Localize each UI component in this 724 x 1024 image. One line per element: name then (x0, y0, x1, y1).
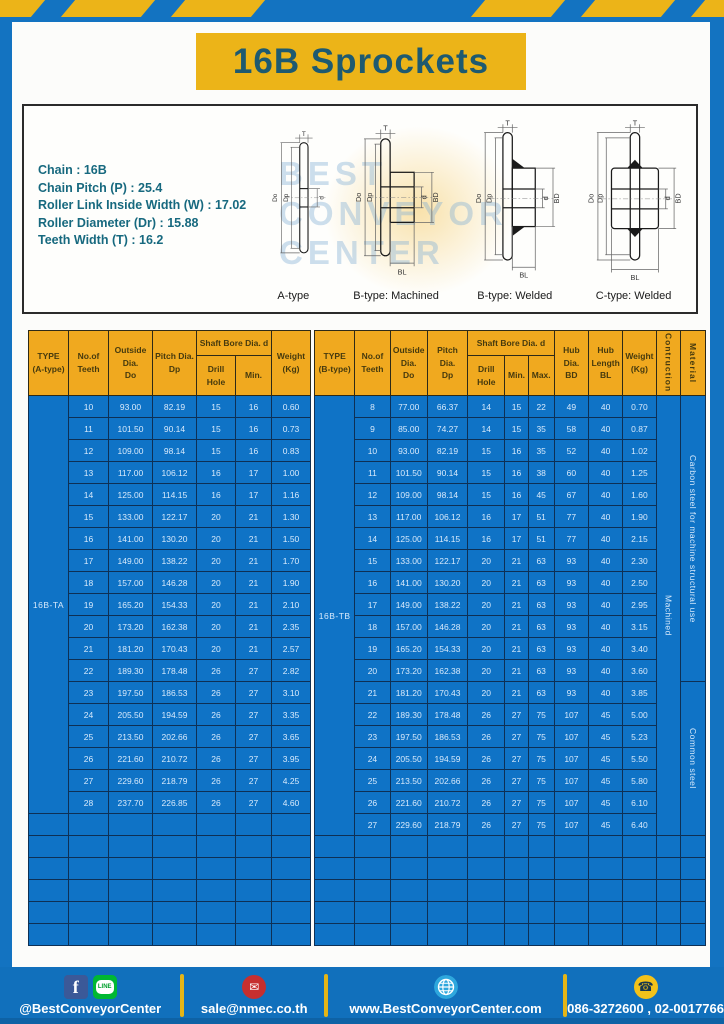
table-cell: 16 (468, 506, 505, 528)
empty-cell (680, 858, 705, 880)
table-cell: 15 (468, 484, 505, 506)
table-cell: 1.50 (272, 528, 311, 550)
empty-cell (153, 924, 197, 946)
table-cell: 82.19 (153, 396, 197, 418)
svg-text:Dp: Dp (596, 194, 605, 203)
table-cell: 1.16 (272, 484, 311, 506)
table-cell: 154.33 (427, 638, 467, 660)
table-cell: 210.72 (427, 792, 467, 814)
table-row (29, 858, 311, 880)
table-cell: 40 (589, 396, 623, 418)
table-cell: 90.14 (427, 462, 467, 484)
empty-cell (315, 858, 355, 880)
empty-cell (197, 836, 236, 858)
table-cell: 40 (589, 682, 623, 704)
table-cell: 74.27 (427, 418, 467, 440)
hazard-stripe (471, 0, 565, 17)
table-cell: 20 (197, 528, 236, 550)
table-cell: 15 (69, 506, 109, 528)
column-header-weight: Weight (Kg) (623, 331, 656, 396)
table-cell: 15 (505, 418, 528, 440)
table-cell: 14 (468, 418, 505, 440)
email-icon: ✉ (242, 975, 266, 999)
empty-cell (554, 858, 588, 880)
empty-cell (29, 924, 69, 946)
table-cell: 75 (528, 792, 554, 814)
table-cell: 27 (236, 748, 272, 770)
empty-cell (197, 814, 236, 836)
table-cell: 16 (355, 572, 390, 594)
empty-cell (623, 858, 656, 880)
empty-cell (468, 902, 505, 924)
table-row: 16B-TB877.0066.3714152249400.70MachinedC… (315, 396, 706, 418)
table-cell: 82.19 (427, 440, 467, 462)
table-cell: 15 (468, 462, 505, 484)
svg-text:BD: BD (674, 193, 683, 203)
table-cell: 20 (355, 660, 390, 682)
empty-cell (528, 880, 554, 902)
table-cell: 20 (468, 682, 505, 704)
table-cell: 141.00 (390, 572, 427, 594)
table-cell: 21 (505, 594, 528, 616)
table-cell: 18 (355, 616, 390, 638)
table-cell: 26 (355, 792, 390, 814)
table-cell: 85.00 (390, 418, 427, 440)
globe-icon (434, 975, 458, 999)
footer-email-section: ✉ sale@nmec.co.th (184, 967, 323, 1024)
empty-cell (153, 836, 197, 858)
table-cell: 16 (505, 440, 528, 462)
table-cell: 35 (528, 418, 554, 440)
table-cell: 1.90 (623, 506, 656, 528)
table-cell: 3.60 (623, 660, 656, 682)
empty-cell (528, 836, 554, 858)
table-cell: 1.90 (272, 572, 311, 594)
table-cell: 5.00 (623, 704, 656, 726)
table-row (29, 924, 311, 946)
table-cell: 93 (554, 572, 588, 594)
table-cell: 28 (69, 792, 109, 814)
table-cell: 40 (589, 594, 623, 616)
table-cell: 181.20 (109, 638, 153, 660)
table-cell: 21 (236, 594, 272, 616)
empty-cell (589, 902, 623, 924)
table-row: 11101.5090.1415160.73 (29, 418, 311, 440)
svg-text:Dp: Dp (365, 193, 374, 202)
table-cell: 20 (468, 550, 505, 572)
empty-cell (109, 836, 153, 858)
table-row: 27229.60218.79262775107456.40 (315, 814, 706, 836)
facebook-icon: f (64, 975, 88, 999)
column-header-construction: Contruction (656, 331, 680, 396)
table-cell: 9 (355, 418, 390, 440)
table-cell: 16 (505, 462, 528, 484)
empty-cell (680, 902, 705, 924)
table-cell: 194.59 (427, 748, 467, 770)
line-label: LINE (96, 980, 114, 994)
table-cell: 130.20 (427, 572, 467, 594)
column-header-teeth: No.of Teeth (69, 331, 109, 396)
svg-text:Do: Do (354, 193, 363, 202)
table-cell: 20 (69, 616, 109, 638)
table-cell: 122.17 (427, 550, 467, 572)
table-cell: 26 (197, 682, 236, 704)
table-cell: 16 (69, 528, 109, 550)
table-cell: 21 (236, 506, 272, 528)
table-cell: 26 (197, 704, 236, 726)
table-row: 15133.00122.1720211.30 (29, 506, 311, 528)
table-cell: 45 (589, 726, 623, 748)
table-cell: 40 (589, 462, 623, 484)
table-cell: 178.48 (153, 660, 197, 682)
empty-cell (197, 902, 236, 924)
hazard-stripe (171, 0, 265, 17)
top-stripe-band (0, 0, 724, 24)
facebook-glyph: f (73, 977, 79, 998)
title-banner: 16B Sprockets (196, 33, 526, 90)
empty-cell (554, 880, 588, 902)
diagram-caption: B-type: Machined (353, 290, 439, 302)
empty-cell (427, 858, 467, 880)
table-cell: 181.20 (390, 682, 427, 704)
empty-cell (589, 880, 623, 902)
table-cell: 20 (197, 594, 236, 616)
table-cell: 26 (197, 770, 236, 792)
table-cell: 17 (236, 462, 272, 484)
footer-social-icons: f LINE (64, 975, 117, 999)
svg-text:d: d (319, 196, 326, 200)
table-cell: 21 (236, 528, 272, 550)
table-row (315, 880, 706, 902)
table-cell: 40 (589, 616, 623, 638)
table-cell: 165.20 (390, 638, 427, 660)
table-cell: 27 (505, 726, 528, 748)
table-cell: 133.00 (109, 506, 153, 528)
spec-line-teeth: Teeth Width (T) : 16.2 (38, 232, 246, 250)
table-row: 22189.30178.4826272.82 (29, 660, 311, 682)
table-cell: 23 (355, 726, 390, 748)
table-cell: 17 (236, 484, 272, 506)
empty-cell (623, 902, 656, 924)
material-cell: Carbon steel for machine structural use (680, 396, 705, 682)
table-cell: 4.60 (272, 792, 311, 814)
table-cell: 18 (69, 572, 109, 594)
empty-cell (236, 836, 272, 858)
table-cell: 20 (468, 594, 505, 616)
table-cell: 2.10 (272, 594, 311, 616)
table-cell: 26 (468, 792, 505, 814)
table-cell: 138.22 (153, 550, 197, 572)
type-label-cell: 16B-TB (315, 396, 355, 836)
table-cell: 17 (505, 506, 528, 528)
empty-cell (505, 858, 528, 880)
table-cell: 16 (236, 396, 272, 418)
footer-social-handle: @BestConveyorCenter (19, 1001, 161, 1016)
table-cell: 27 (69, 770, 109, 792)
empty-cell (554, 924, 588, 946)
a-type-table: TYPE (A-type) No.of Teeth Outside Dia. D… (28, 330, 311, 946)
table-cell: 21 (69, 638, 109, 660)
diagram-caption: A-type (277, 290, 309, 302)
table-cell: 122.17 (153, 506, 197, 528)
table-cell: 93 (554, 594, 588, 616)
table-row: 20173.20162.3820216393403.60 (315, 660, 706, 682)
empty-cell (355, 880, 390, 902)
table-cell: 0.87 (623, 418, 656, 440)
table-cell: 21 (355, 682, 390, 704)
table-cell: 205.50 (390, 748, 427, 770)
table-cell: 14 (69, 484, 109, 506)
table-cell: 20 (197, 506, 236, 528)
phone-glyph: ☎ (637, 979, 653, 995)
table-cell: 45 (528, 484, 554, 506)
table-cell: 221.60 (390, 792, 427, 814)
table-cell: 27 (355, 814, 390, 836)
table-cell: 21 (505, 638, 528, 660)
empty-cell (29, 902, 69, 924)
empty-cell (69, 814, 109, 836)
table-row: 23197.50186.5326273.10 (29, 682, 311, 704)
table-cell: 5.23 (623, 726, 656, 748)
table-cell: 125.00 (109, 484, 153, 506)
table-cell: 21 (236, 572, 272, 594)
table-row: 19165.20154.3320212.10 (29, 594, 311, 616)
empty-cell (236, 858, 272, 880)
empty-cell (656, 880, 680, 902)
empty-cell (623, 836, 656, 858)
table-cell: 17 (355, 594, 390, 616)
empty-cell (505, 902, 528, 924)
table-cell: 21 (236, 616, 272, 638)
table-cell: 35 (528, 440, 554, 462)
empty-cell (468, 836, 505, 858)
column-header-drill-hole: Drill Hole (197, 356, 236, 396)
table-cell: 26 (468, 814, 505, 836)
table-cell: 149.00 (109, 550, 153, 572)
table-row: 22189.30178.48262775107455.00 (315, 704, 706, 726)
table-cell: 107 (554, 726, 588, 748)
empty-cell (153, 858, 197, 880)
empty-cell (554, 902, 588, 924)
empty-cell (272, 858, 311, 880)
table-cell: 38 (528, 462, 554, 484)
empty-cell (680, 924, 705, 946)
table-cell: 6.40 (623, 814, 656, 836)
table-cell: 16 (236, 440, 272, 462)
table-cell: 21 (505, 682, 528, 704)
table-cell: 40 (589, 638, 623, 660)
empty-cell (623, 880, 656, 902)
table-cell: 197.50 (390, 726, 427, 748)
empty-cell (589, 836, 623, 858)
table-cell: 26 (197, 726, 236, 748)
table-cell: 130.20 (153, 528, 197, 550)
table-cell: 149.00 (390, 594, 427, 616)
table-row: 20173.20162.3820212.35 (29, 616, 311, 638)
table-cell: 26 (468, 770, 505, 792)
table-cell: 17 (69, 550, 109, 572)
b-type-table-body: 16B-TB877.0066.3714152249400.70MachinedC… (315, 396, 706, 946)
spec-line-width: Roller Link Inside Width (W) : 17.02 (38, 197, 246, 215)
table-cell: 26 (197, 792, 236, 814)
empty-cell (680, 880, 705, 902)
table-cell: 1.25 (623, 462, 656, 484)
table-cell: 107 (554, 792, 588, 814)
empty-cell (623, 924, 656, 946)
table-cell: 15 (468, 440, 505, 462)
svg-text:BD: BD (553, 193, 562, 203)
table-cell: 45 (589, 814, 623, 836)
table-row: 16141.00130.2020216393402.50 (315, 572, 706, 594)
table-cell: 27 (236, 726, 272, 748)
table-cell: 189.30 (109, 660, 153, 682)
table-cell: 13 (355, 506, 390, 528)
table-cell: 10 (355, 440, 390, 462)
table-cell: 5.50 (623, 748, 656, 770)
table-cell: 106.12 (153, 462, 197, 484)
table-cell: 26 (468, 726, 505, 748)
table-cell: 27 (236, 682, 272, 704)
svg-text:Do: Do (587, 194, 596, 203)
table-cell: 40 (589, 660, 623, 682)
table-row: 14125.00114.1516175177402.15 (315, 528, 706, 550)
column-header-outside-dia: Outside Dia. Do (109, 331, 153, 396)
empty-cell (29, 836, 69, 858)
table-cell: 60 (554, 462, 588, 484)
table-cell: 15 (505, 396, 528, 418)
footer-website-section: www.BestConveyorCenter.com (328, 967, 563, 1024)
table-cell: 14 (468, 396, 505, 418)
table-cell: 12 (355, 484, 390, 506)
empty-cell (236, 902, 272, 924)
table-cell: 3.85 (623, 682, 656, 704)
line-icon: LINE (93, 975, 117, 999)
table-cell: 40 (589, 506, 623, 528)
empty-cell (272, 902, 311, 924)
table-cell: 178.48 (427, 704, 467, 726)
table-cell: 2.15 (623, 528, 656, 550)
empty-cell (355, 902, 390, 924)
table-row (29, 814, 311, 836)
hazard-stripe (581, 0, 675, 17)
sprocket-diagram-a-type: T Do Dp d A-type (252, 112, 335, 308)
column-header-drill-hole: Drill Hole (468, 356, 505, 396)
table-cell: 67 (554, 484, 588, 506)
empty-cell (29, 814, 69, 836)
spec-diagram-box: Best Conveyor Center Chain : 16B Chain P… (22, 104, 698, 314)
table-cell: 1.30 (272, 506, 311, 528)
table-cell: 117.00 (109, 462, 153, 484)
table-cell: 26 (69, 748, 109, 770)
table-cell: 15 (355, 550, 390, 572)
svg-text:BL: BL (520, 271, 529, 280)
table-cell: 2.95 (623, 594, 656, 616)
spec-list: Chain : 16B Chain Pitch (P) : 25.4 Rolle… (38, 162, 246, 250)
table-row: 13117.00106.1216171.00 (29, 462, 311, 484)
table-cell: 205.50 (109, 704, 153, 726)
table-cell: 51 (528, 528, 554, 550)
spec-line-chain: Chain : 16B (38, 162, 246, 180)
table-row: 19165.20154.3320216393403.40 (315, 638, 706, 660)
table-cell: 45 (589, 748, 623, 770)
empty-cell (390, 924, 427, 946)
table-cell: 162.38 (153, 616, 197, 638)
table-row: 17149.00138.2220211.70 (29, 550, 311, 572)
empty-cell (656, 902, 680, 924)
table-cell: 22 (528, 396, 554, 418)
svg-text:Dp: Dp (485, 194, 494, 203)
sprocket-diagram-b-type-machined: T Do Dp d (339, 112, 454, 308)
table-cell: 173.20 (390, 660, 427, 682)
table-cell: 2.30 (623, 550, 656, 572)
table-cell: 52 (554, 440, 588, 462)
svg-text:T: T (302, 131, 306, 138)
table-cell: 22 (355, 704, 390, 726)
table-cell: 63 (528, 594, 554, 616)
table-cell: 146.28 (427, 616, 467, 638)
column-header-outside-dia: Outside Dia. Do (390, 331, 427, 396)
construction-cell: Machined (656, 396, 680, 836)
table-row: 24205.50194.59262775107455.50 (315, 748, 706, 770)
table-cell: 24 (355, 748, 390, 770)
table-cell: 27 (505, 748, 528, 770)
footer-phone: 086-3272600 , 02-0017766 (567, 1001, 724, 1016)
table-cell: 213.50 (390, 770, 427, 792)
table-row: 26221.60210.7226273.95 (29, 748, 311, 770)
table-cell: 165.20 (109, 594, 153, 616)
table-cell: 93.00 (109, 396, 153, 418)
table-cell: 20 (197, 572, 236, 594)
table-row (29, 880, 311, 902)
table-cell: 15 (197, 440, 236, 462)
table-cell: 21 (505, 550, 528, 572)
table-cell: 21 (505, 660, 528, 682)
hazard-stripe (691, 0, 724, 17)
table-cell: 210.72 (153, 748, 197, 770)
empty-cell (468, 880, 505, 902)
table-cell: 77 (554, 506, 588, 528)
b-type-table: TYPE (B-type) No.of Teeth Outside Dia. D… (314, 330, 706, 946)
b-type-welded-drawing: T Do Dp d (457, 112, 572, 290)
column-header-teeth: No.of Teeth (355, 331, 390, 396)
column-header-pitch-dia: Pitch Dia. Dp (153, 331, 197, 396)
table-row: 26221.60210.72262775107456.10 (315, 792, 706, 814)
table-row: 27229.60218.7926274.25 (29, 770, 311, 792)
table-cell: 12 (69, 440, 109, 462)
table-cell: 40 (589, 484, 623, 506)
table-row: 16141.00130.2020211.50 (29, 528, 311, 550)
empty-cell (656, 924, 680, 946)
table-cell: 75 (528, 814, 554, 836)
table-cell: 27 (236, 660, 272, 682)
table-cell: 27 (236, 792, 272, 814)
empty-cell (315, 880, 355, 902)
table-row: 24205.50194.5926273.35 (29, 704, 311, 726)
table-cell: 20 (468, 660, 505, 682)
email-glyph: ✉ (249, 980, 259, 994)
column-header-weight: Weight (Kg) (272, 331, 311, 396)
table-cell: 27 (505, 704, 528, 726)
diagram-strip: T Do Dp d A-type (252, 112, 691, 308)
table-cell: 4.25 (272, 770, 311, 792)
diagram-caption: B-type: Welded (477, 290, 552, 302)
empty-cell (153, 814, 197, 836)
material-cell: Common steel (680, 682, 705, 836)
table-cell: 186.53 (427, 726, 467, 748)
svg-text:d: d (541, 196, 550, 200)
table-cell: 20 (468, 638, 505, 660)
table-row: 12109.0098.1415160.83 (29, 440, 311, 462)
